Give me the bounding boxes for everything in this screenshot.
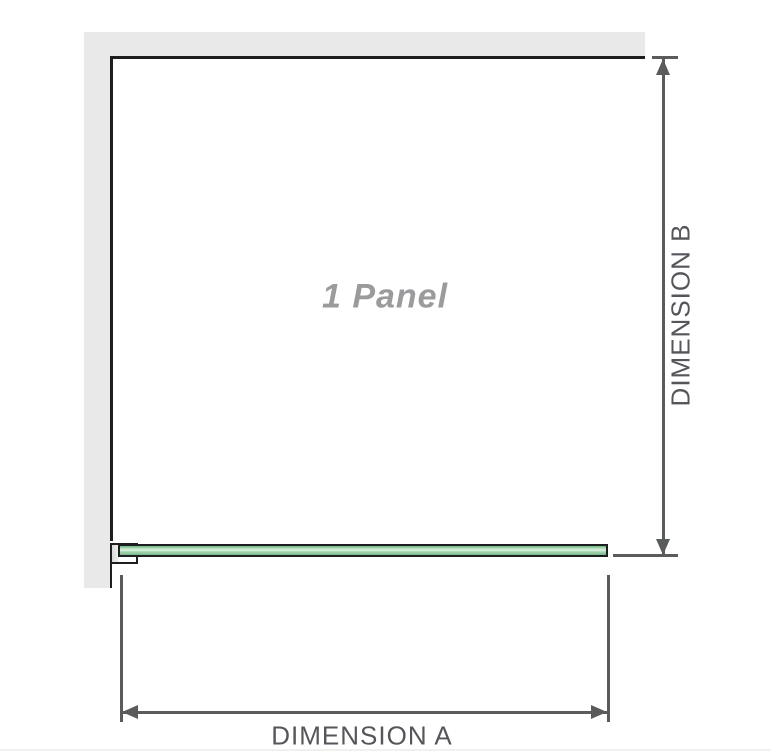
dimension-b-label: DIMENSION B (666, 224, 697, 407)
dimension-b-cap-bottom (613, 554, 678, 557)
panel-outline-left (110, 56, 113, 541)
dimension-b-arrow-down-icon (656, 539, 670, 555)
wall-strip-left (84, 32, 110, 588)
wall-strip-top (84, 32, 645, 56)
panel-count-label: 1 Panel (322, 278, 448, 317)
bottom-edge-line (0, 749, 771, 751)
dimension-a-arrow-left-icon (122, 705, 138, 719)
dimension-a-arrow-right-icon (591, 705, 607, 719)
dimension-a-line (123, 711, 607, 714)
dimension-a-extension-left (120, 575, 123, 722)
dimension-a-label: DIMENSION A (271, 721, 452, 752)
panel-outline-top (110, 56, 645, 59)
dimension-b-arrow-up-icon (656, 59, 670, 75)
dimension-a-extension-right (607, 575, 610, 722)
wall-edge-lower (110, 564, 113, 588)
panel-dimension-diagram: 1 Panel DIMENSION B DIMENSION A (0, 0, 771, 755)
glass-panel-bar (118, 544, 608, 557)
dimension-b-line (662, 58, 665, 555)
